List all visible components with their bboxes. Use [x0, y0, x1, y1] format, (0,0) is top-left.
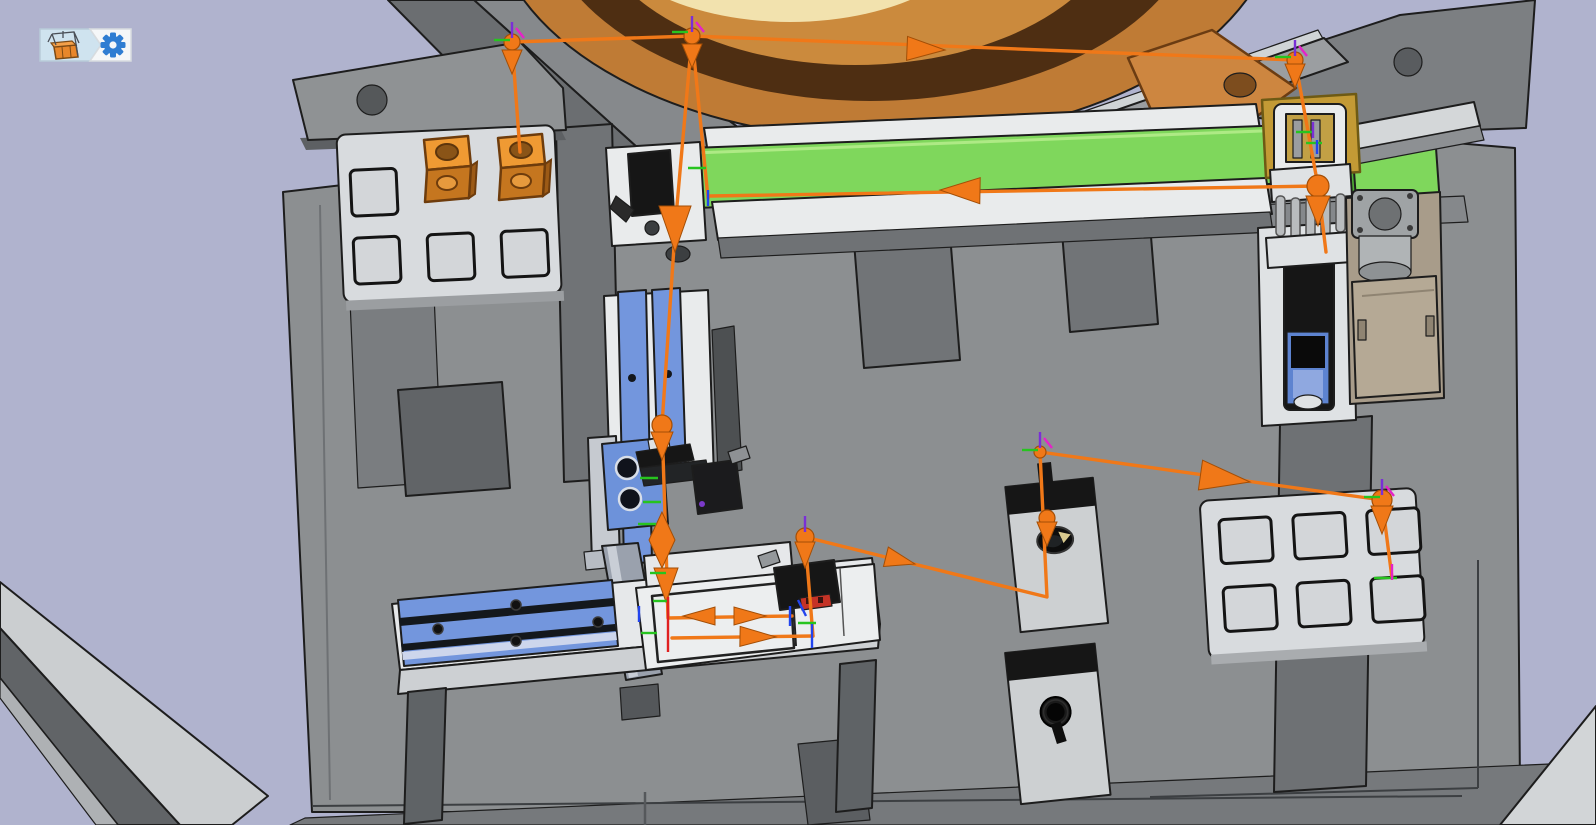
- orange-workpiece-2[interactable]: [498, 134, 551, 200]
- gripper-finger: [1291, 198, 1300, 240]
- gripper-finger: [1336, 194, 1345, 232]
- tray-pocket: [1293, 512, 1348, 559]
- trajectory-waypoint[interactable]: [1307, 175, 1329, 197]
- gripper-finger: [1276, 196, 1285, 236]
- toolbar: [40, 29, 131, 61]
- tray-pocket: [427, 233, 475, 281]
- table-leg: [620, 684, 660, 720]
- cad-3d-viewport[interactable]: [0, 0, 1596, 825]
- pallet-tray-left[interactable]: [336, 125, 564, 311]
- scene-canvas[interactable]: [0, 0, 1596, 825]
- orange-workpiece-1[interactable]: [424, 136, 477, 202]
- tray-pocket: [1297, 580, 1352, 627]
- plate-slot-left: [398, 382, 510, 496]
- tray-pocket: [350, 168, 398, 216]
- tray-pocket: [1223, 585, 1278, 632]
- tray-pocket: [353, 236, 401, 284]
- table-leg: [404, 688, 446, 824]
- stepper-motor[interactable]: [1346, 190, 1444, 404]
- plate-slot-mid-1: [854, 234, 960, 368]
- table-leg: [836, 660, 876, 812]
- gear-icon: [101, 33, 126, 58]
- station-b-knob[interactable]: [1005, 644, 1110, 805]
- tray-pocket: [501, 229, 549, 277]
- tray-pocket: [1219, 517, 1274, 564]
- tray-pocket: [1371, 576, 1426, 623]
